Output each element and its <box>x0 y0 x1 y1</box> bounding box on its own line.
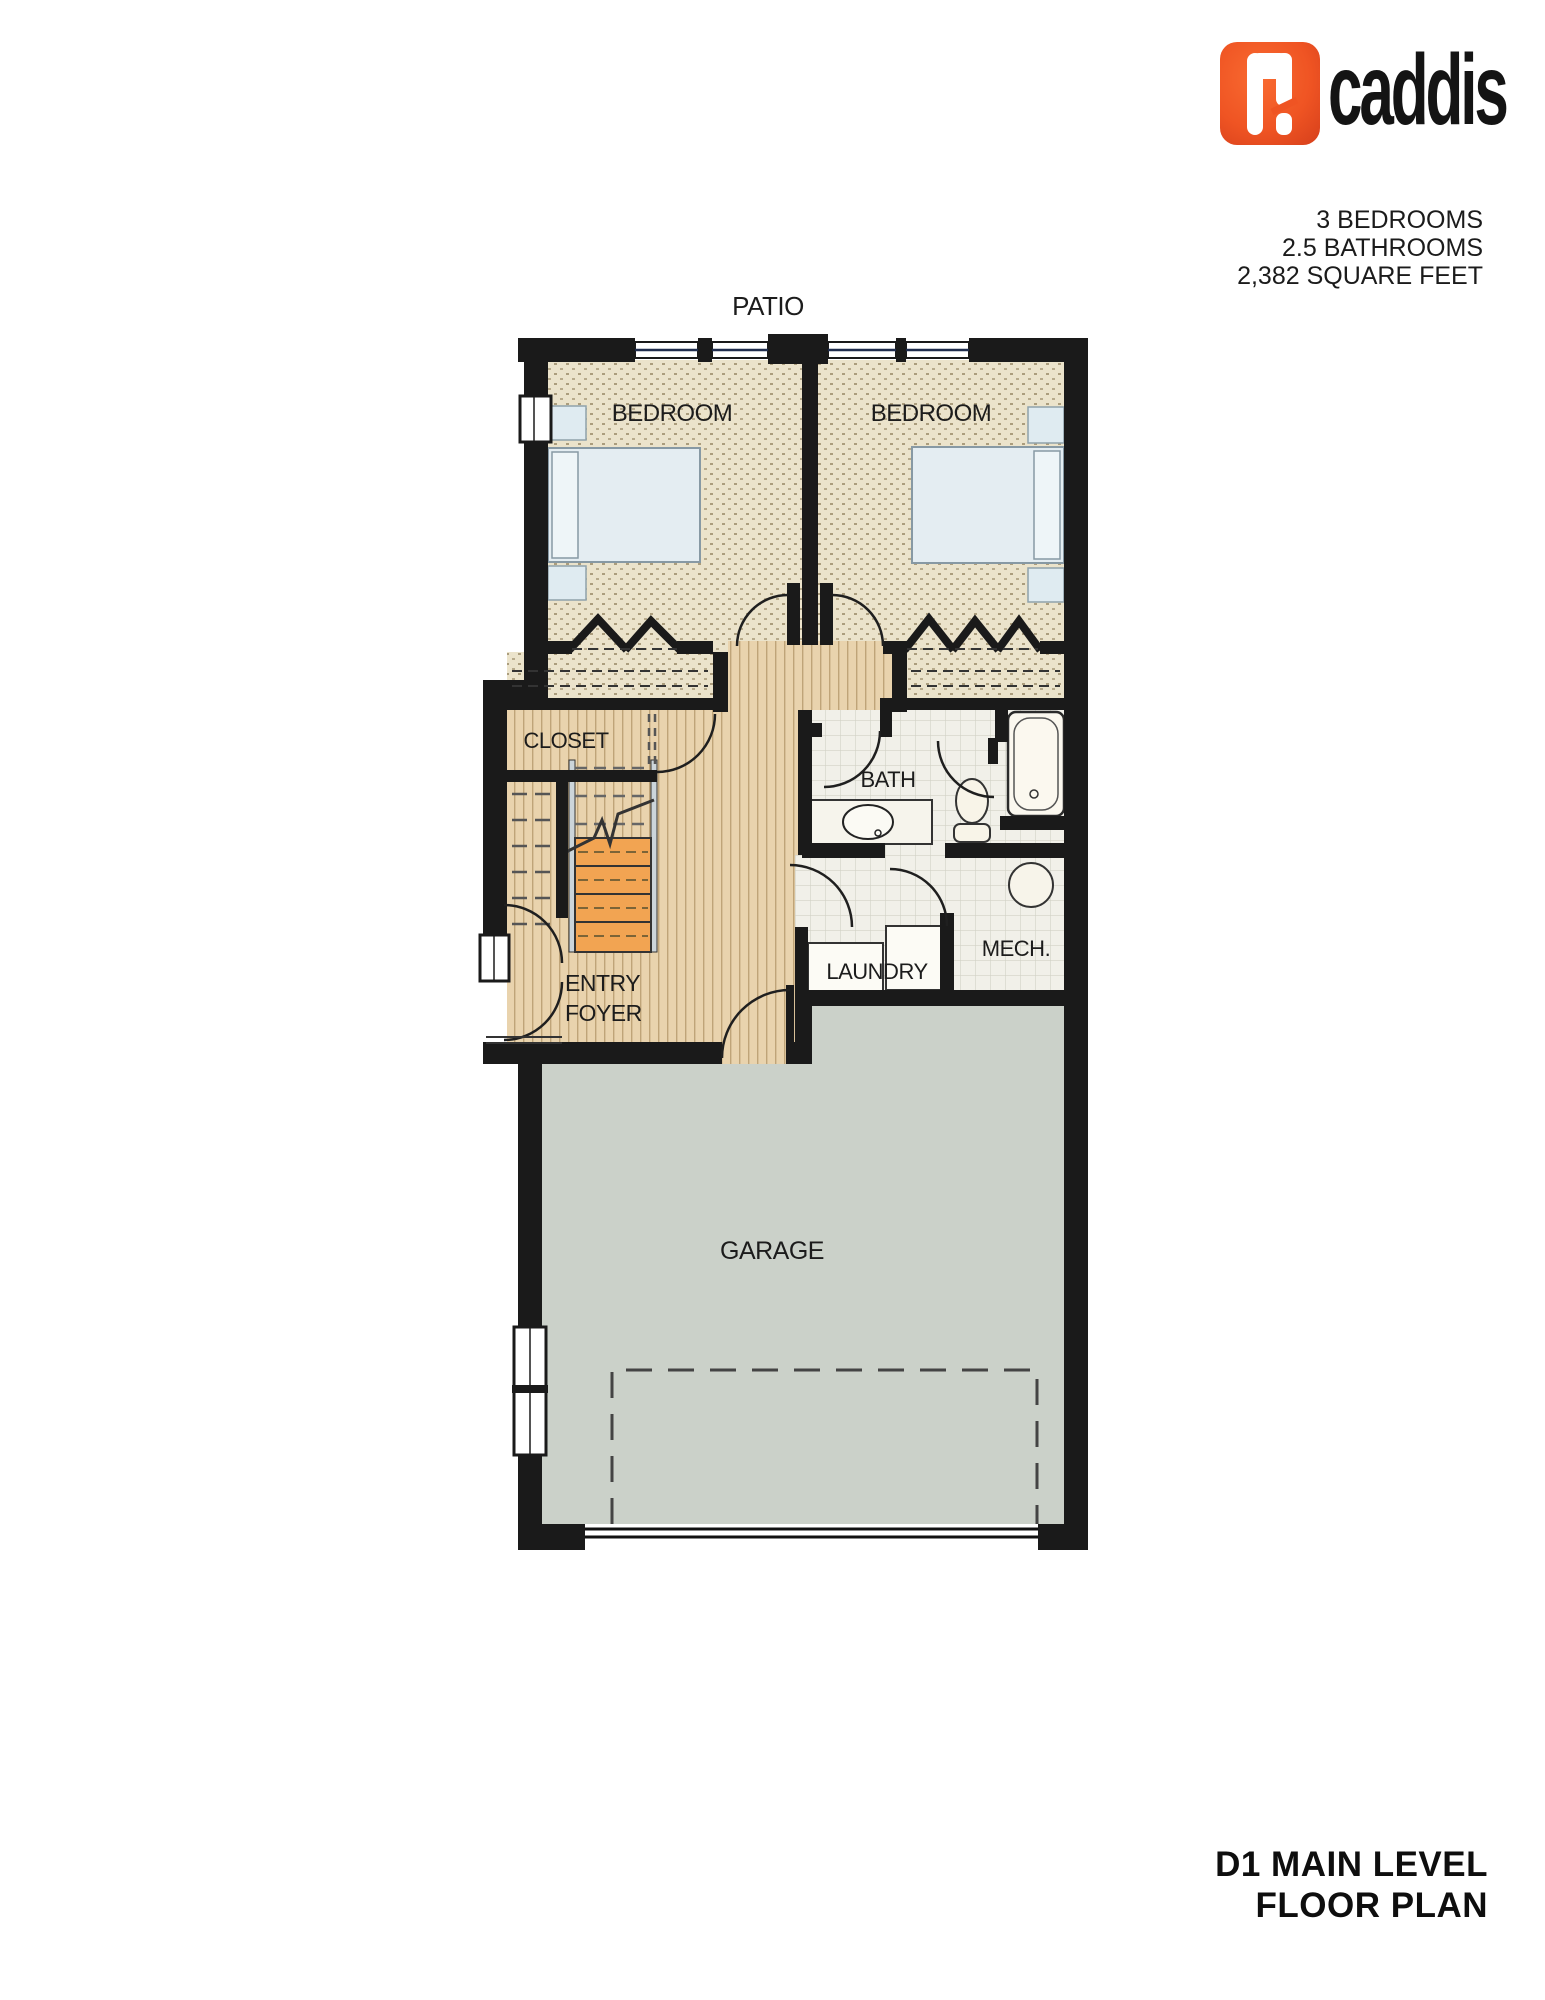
floor-plan-page: caddis 3 BEDROOMS 2.5 BATHROOMS 2,382 SQ… <box>0 0 1545 2000</box>
laundry-label: LAUNDRY <box>826 959 928 984</box>
bedroom-right-label: BEDROOM <box>871 400 992 427</box>
entry-label-line1: ENTRY <box>565 970 640 996</box>
hall-mouth-floor <box>728 641 892 711</box>
closet-label: CLOSET <box>523 728 608 753</box>
garage-door <box>585 1529 1038 1537</box>
bedroom-left-label: BEDROOM <box>612 400 733 427</box>
nightstand <box>1028 407 1064 443</box>
entry-label-line2: FOYER <box>565 1000 642 1026</box>
garage-floor <box>542 1006 1064 1524</box>
mech-label: MECH. <box>982 936 1050 961</box>
toilet <box>954 779 990 842</box>
nightstand <box>1028 568 1064 602</box>
patio-label: PATIO <box>732 291 804 321</box>
floor-plan-drawing: PATIO BEDROOM BEDROOM CLOSET BATH ENTRY … <box>0 0 1545 2000</box>
water-heater <box>1009 863 1053 907</box>
sheet-title-line2: FLOOR PLAN <box>1215 1885 1488 1926</box>
bedroom-left-window <box>520 396 551 442</box>
sheet-title: D1 MAIN LEVEL FLOOR PLAN <box>1215 1844 1488 1926</box>
bath-label: BATH <box>860 767 915 792</box>
sheet-title-line1: D1 MAIN LEVEL <box>1215 1844 1488 1885</box>
bed-right <box>912 447 1064 563</box>
nightstand <box>548 566 586 600</box>
garage-label: GARAGE <box>720 1237 824 1265</box>
vanity-sink <box>808 800 932 844</box>
garage-window <box>512 1327 548 1455</box>
closet-strip-right-floor <box>907 652 1064 698</box>
bathtub <box>1008 712 1064 816</box>
bed-left <box>548 448 700 562</box>
nightstand <box>548 406 586 440</box>
entry-sidelite-window <box>480 935 509 981</box>
